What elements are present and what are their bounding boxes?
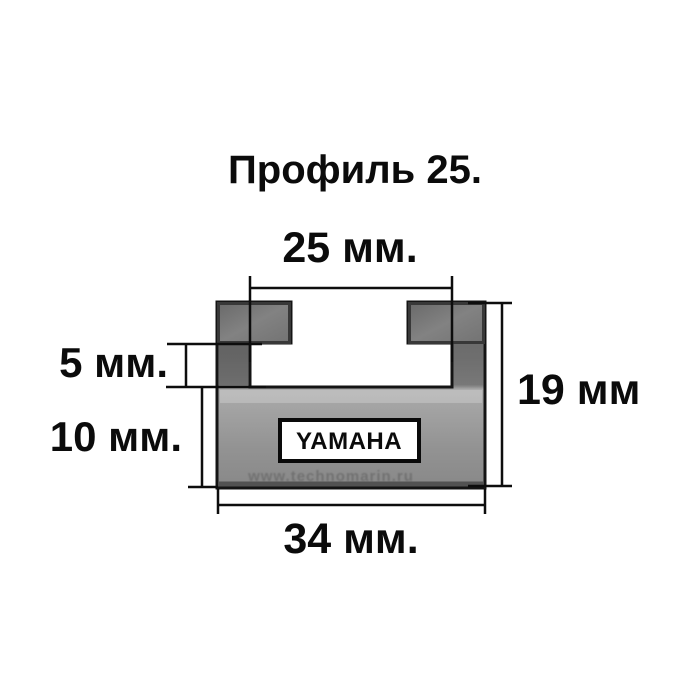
right-lip bbox=[410, 304, 484, 343]
left-lip bbox=[219, 304, 290, 343]
label-top-width: 25 мм. bbox=[282, 224, 417, 272]
floor-highlight bbox=[220, 390, 482, 403]
dimension-base-height bbox=[188, 387, 218, 487]
label-lip-depth: 5 мм. bbox=[59, 339, 168, 386]
profile-diagram: Профиль 25. bbox=[0, 0, 700, 700]
brand-label: YAMAHA bbox=[296, 428, 402, 455]
diagram-svg: Профиль 25. bbox=[0, 0, 700, 700]
label-bottom-width: 34 мм. bbox=[283, 515, 418, 563]
brand-plate: YAMAHA bbox=[280, 420, 419, 461]
label-total-height: 19 мм bbox=[517, 366, 640, 414]
label-base-height: 10 мм. bbox=[50, 413, 182, 460]
page-title: Профиль 25. bbox=[228, 148, 482, 192]
dimension-bottom-width bbox=[218, 489, 485, 514]
watermark: www.technomarin.ru bbox=[247, 468, 414, 485]
